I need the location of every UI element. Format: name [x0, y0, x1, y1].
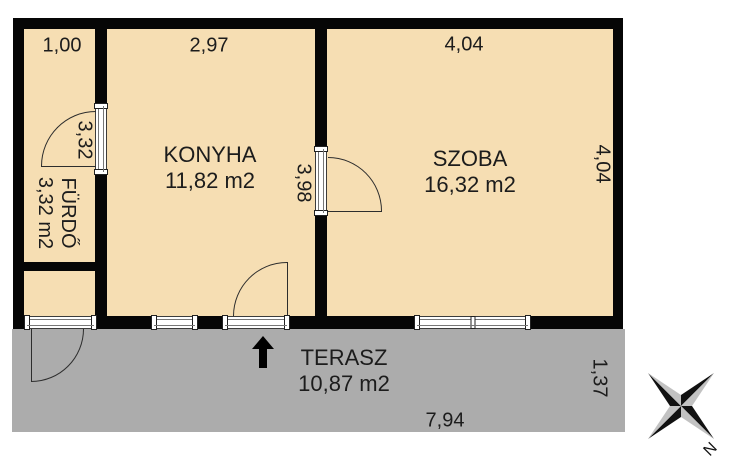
- arrow-shaft: [259, 348, 267, 368]
- door-jamb: [24, 315, 30, 330]
- furdo-door-leaf: [41, 166, 96, 167]
- window-mullion: [470, 316, 475, 329]
- window-jamb: [192, 315, 198, 330]
- room-name: FÜRDŐ: [56, 177, 79, 249]
- door-jamb: [94, 103, 108, 109]
- szoba-window: [415, 316, 530, 329]
- north-label: N: [699, 438, 719, 458]
- room-name: KONYHA: [164, 142, 257, 168]
- konyha-window: [152, 316, 197, 329]
- floor-plan: 1,00 2,97 4,04 3,32 3,98 4,04 1,37 7,94 …: [0, 0, 730, 463]
- dim-label-furdo-width: 1,00: [43, 35, 82, 58]
- room-area: 11,82 m2: [164, 168, 257, 194]
- door-jamb: [91, 315, 97, 330]
- furdo-door-frame: [95, 104, 107, 174]
- dim-label-szoba-length: 4,04: [591, 145, 614, 184]
- entry-terrace-door-leaf: [31, 329, 32, 382]
- window-jamb: [151, 315, 157, 330]
- compass-rose-icon: N: [633, 360, 730, 460]
- room-area: 10,87 m2: [298, 371, 390, 397]
- room-label-konyha: KONYHA 11,82 m2: [164, 142, 257, 194]
- door-jamb: [284, 315, 290, 330]
- entrance-arrow: [252, 336, 274, 368]
- dim-label-konyha-width: 2,97: [190, 35, 229, 58]
- dim-label-konyha-length: 3,98: [292, 164, 315, 203]
- door-jamb: [222, 315, 228, 330]
- window-jamb: [525, 315, 531, 330]
- compass-star: [648, 373, 714, 439]
- room-area: 3,32 m2: [33, 177, 56, 249]
- dim-label-szoba-width: 4,04: [445, 34, 484, 57]
- entry-terrace-door-frame: [25, 316, 96, 329]
- room-label-terasz: TERASZ 10,87 m2: [298, 345, 390, 397]
- door-jamb: [314, 146, 328, 152]
- window-jamb: [414, 315, 420, 330]
- dim-label-furdo-length: 3,32: [73, 121, 96, 160]
- konyha-terrace-door-frame: [223, 316, 289, 329]
- room-label-szoba: SZOBA 16,32 m2: [424, 146, 516, 198]
- door-jamb: [94, 169, 108, 175]
- room-name: TERASZ: [298, 345, 390, 371]
- dim-label-terasz-depth: 1,37: [588, 359, 611, 398]
- konyha-szoba-door-leaf: [328, 211, 382, 212]
- konyha-szoba-door-frame: [315, 147, 327, 215]
- konyha-terrace-door-leaf: [287, 262, 288, 316]
- room-area: 16,32 m2: [424, 172, 516, 198]
- dim-label-terasz-width: 7,94: [426, 410, 465, 433]
- room-name: SZOBA: [424, 146, 516, 172]
- entry-hall-floor: [24, 271, 95, 316]
- room-label-furdo: FÜRDŐ 3,32 m2: [33, 177, 79, 249]
- door-jamb: [314, 210, 328, 216]
